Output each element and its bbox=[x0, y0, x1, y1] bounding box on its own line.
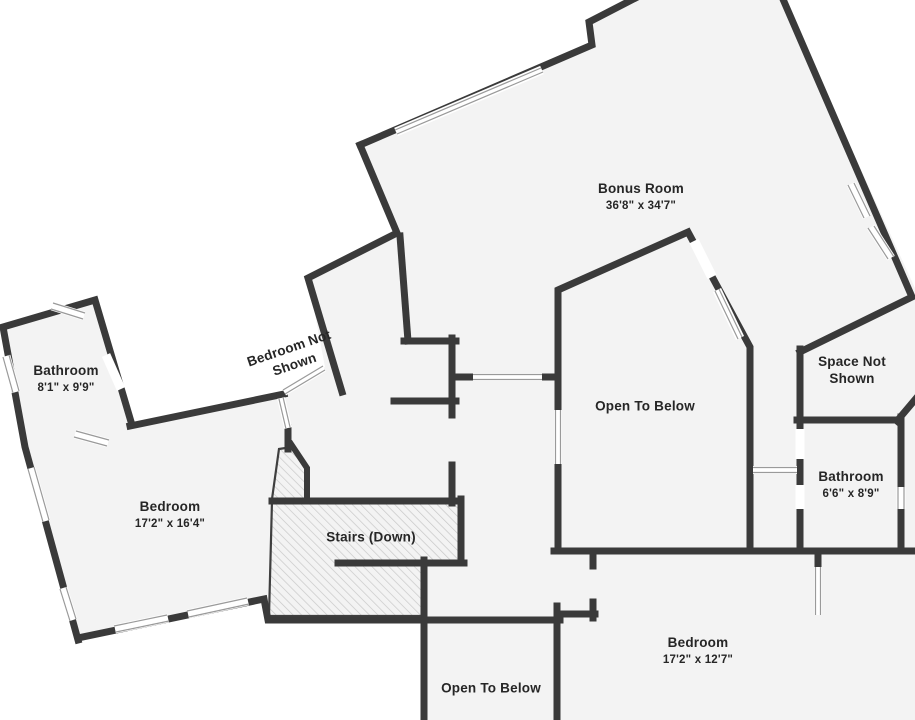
room-label-stairs-down: Stairs (Down) bbox=[326, 530, 416, 547]
floor-plan-drawing bbox=[0, 0, 915, 720]
room-label-bathroom-right: Bathroom 6'6" x 8'9" bbox=[818, 469, 883, 501]
room-name: Open To Below bbox=[441, 681, 541, 698]
room-name: Stairs (Down) bbox=[326, 530, 416, 547]
room-name: Bathroom bbox=[33, 363, 98, 380]
room-name: Bedroom bbox=[663, 635, 733, 652]
room-name: Bathroom bbox=[818, 469, 883, 486]
room-dims: 36'8" x 34'7" bbox=[598, 199, 684, 213]
floor-plan: Bonus Room 36'8" x 34'7" Bathroom 8'1" x… bbox=[0, 0, 915, 720]
room-name: Bedroom bbox=[135, 499, 205, 516]
room-dims: 17'2" x 12'7" bbox=[663, 653, 733, 667]
room-label-bedroom-bottom: Bedroom 17'2" x 12'7" bbox=[663, 635, 733, 667]
room-label-bathroom-left: Bathroom 8'1" x 9'9" bbox=[33, 363, 98, 395]
room-label-bedroom-left: Bedroom 17'2" x 16'4" bbox=[135, 499, 205, 531]
room-dims: 6'6" x 8'9" bbox=[818, 487, 883, 501]
room-dims: 8'1" x 9'9" bbox=[33, 381, 98, 395]
room-name: Bonus Room bbox=[598, 181, 684, 198]
room-label-bonus-room: Bonus Room 36'8" x 34'7" bbox=[598, 181, 684, 213]
room-dims: 17'2" x 16'4" bbox=[135, 517, 205, 531]
room-label-open-to-below-center: Open To Below bbox=[595, 399, 695, 416]
room-label-space-not-shown: Space Not Shown bbox=[806, 354, 898, 388]
room-name: Space Not Shown bbox=[806, 354, 898, 388]
room-name: Open To Below bbox=[595, 399, 695, 416]
room-label-open-to-below-bottom: Open To Below bbox=[441, 681, 541, 698]
